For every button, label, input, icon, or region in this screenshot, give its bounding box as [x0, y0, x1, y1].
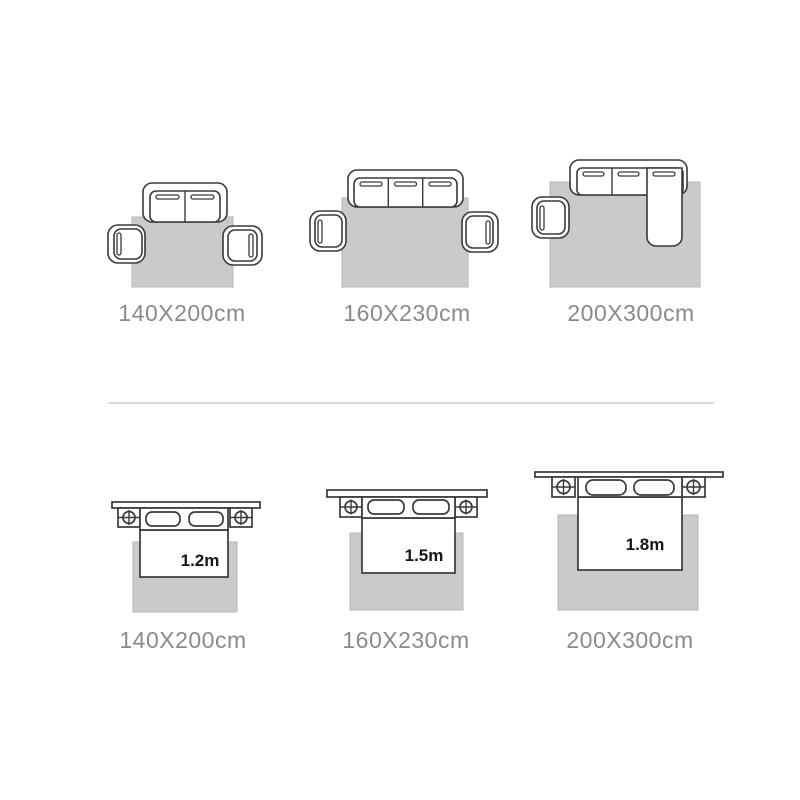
size-label: 200X300cm: [566, 627, 693, 654]
size-label: 160X230cm: [343, 300, 470, 327]
sofa-rug-diagram-160x230: [303, 162, 503, 295]
bed-width-label: 1.8m: [626, 535, 665, 555]
size-label: 140X200cm: [118, 300, 245, 327]
bed-width-label: 1.2m: [181, 551, 220, 571]
three-seat-sofa-two-armchairs-rug-icon: [303, 162, 503, 290]
divider-line: [108, 402, 714, 404]
sofa-rug-diagram-200x300: [518, 150, 714, 297]
size-label: 160X230cm: [342, 627, 469, 654]
size-label: 200X300cm: [567, 300, 694, 327]
two-seat-sofa-two-armchairs-rug-icon: [103, 176, 267, 291]
bed-width-label: 1.5m: [405, 546, 444, 566]
rug-size-guide-page: 140X200cm 160X230cm 200X300cm: [0, 0, 800, 800]
size-label: 140X200cm: [119, 627, 246, 654]
sofa-rug-diagram-140x200: [103, 176, 267, 296]
corner-sofa-armchair-rug-icon: [518, 150, 714, 292]
